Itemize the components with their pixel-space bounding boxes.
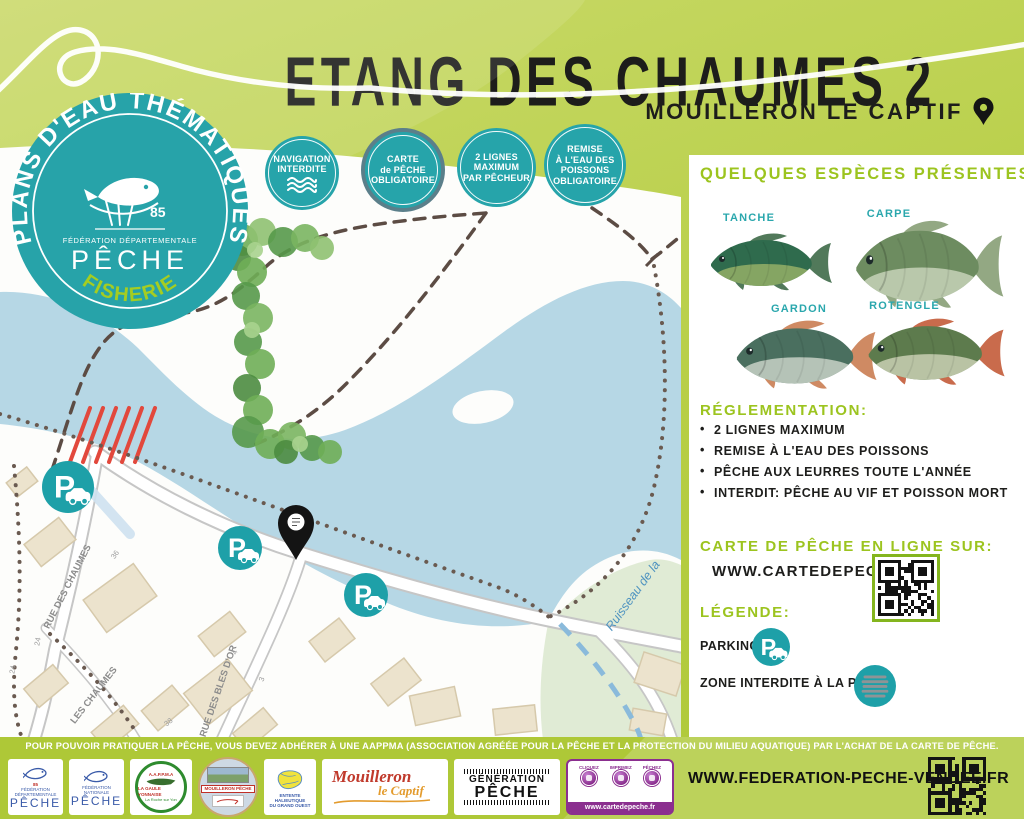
logo-federation-nationale: FÉDÉRATION NATIONALE PÊCHE — [69, 759, 124, 815]
partner-logos: 85 FÉDÉRATION DÉPARTEMENTALE PÊCHE FÉDÉR… — [8, 757, 674, 817]
legend-heading: LÉGENDE: — [700, 604, 790, 621]
badge-remise-a-leau: REMISE À L'EAU DES POISSONS OBLIGATOIRE — [544, 124, 626, 206]
legend-parking-icon — [752, 628, 790, 666]
logo-mouilleron-peche: MOUILLERON PÊCHE — [198, 757, 258, 817]
logo-entente-halieutique: ENTENTE HALIEUTIQUE DU GRAND OUEST — [264, 759, 316, 815]
parking-marker — [218, 526, 262, 570]
species-heading: QUELQUES ESPÈCES PRÉSENTES: — [700, 165, 1024, 184]
fish-image-gardon — [730, 320, 880, 392]
badge-navigation-interdite: NAVIGATION INTERDITE — [265, 136, 339, 210]
fish-logo-icon — [23, 765, 49, 782]
card-online-heading: CARTE DE PÊCHE EN LIGNE SUR: — [700, 538, 993, 555]
info-panel: QUELQUES ESPÈCES PRÉSENTES: TANCHE CARPE… — [689, 155, 1024, 737]
species-label-carpe: CARPE — [854, 208, 924, 220]
footer-bar: POUR POUVOIR PRATIQUER LA PÊCHE, VOUS DE… — [0, 737, 1024, 819]
badge-2-lignes-maximum: 2 LIGNES MAXIMUM PAR PÊCHEUR — [457, 128, 536, 207]
logo-aappma-la-gaule: A.A.P.P.M.A LA GAULE YONNAISE La Roche s… — [130, 759, 192, 815]
regulation-rule: INTERDIT: PÊCHE AU VIF ET POISSON MORT — [700, 486, 1008, 500]
legend-parking-label: PARKING — [700, 639, 760, 653]
waves-icon — [286, 177, 318, 193]
federation-qr-code — [928, 757, 986, 815]
badge-carte-de-peche-obligatoire: CARTE de PÊCHE OBLIGATOIRE — [361, 128, 445, 212]
fish-image-tanche — [705, 232, 835, 294]
poster-etang-des-chaumes: ETANG DES CHAUMES 2 MOUILLERON LE CAPTIF — [0, 0, 1024, 819]
species-label-gardon: GARDON — [764, 303, 834, 315]
regulation-rule: PÊCHE AUX LEURRES TOUTE L'ANNÉE — [700, 465, 1008, 479]
region-map-icon — [275, 767, 305, 793]
print-icon — [613, 770, 629, 786]
logo-mouilleron-le-captif: Mouilleron le Captif — [322, 759, 448, 815]
aappma-circle: A.A.P.P.M.A LA GAULE YONNAISE La Roche s… — [135, 761, 187, 813]
fish-image-carpe — [849, 220, 1007, 312]
regulation-rule: 2 LIGNES MAXIMUM — [700, 423, 1008, 437]
svg-text:24: 24 — [32, 637, 42, 647]
parking-marker — [42, 461, 94, 513]
red-fish-sketch — [212, 795, 244, 807]
federation-badge: PLANS D'EAU THÉMATIQUES 85 FÉDÉRATION DÉ… — [12, 93, 248, 329]
svg-text:85: 85 — [150, 204, 166, 220]
logo-cartedepeche-fr: CLIQUEZ IMPRIMEZ PÊCHEZ www.cartedepeche… — [566, 759, 674, 815]
parking-marker — [344, 573, 388, 617]
species-label-rotengle: ROTENGLE — [867, 300, 942, 312]
regulation-rule: REMISE À L'EAU DES POISSONS — [700, 444, 1008, 458]
regulation-list: 2 LIGNES MAXIMUM REMISE À L'EAU DES POIS… — [700, 423, 1008, 507]
swash-underline — [332, 797, 432, 805]
legend-no-fishing-zone-icon — [854, 665, 896, 707]
fish-image-rotengle — [862, 318, 1008, 388]
fish-icon — [644, 770, 660, 786]
pike-icon — [145, 777, 177, 786]
cartedepeche-qr-code — [872, 554, 940, 622]
logo-federation-departementale-85: 85 FÉDÉRATION DÉPARTEMENTALE PÊCHE — [8, 759, 63, 815]
badge-org-line: FÉDÉRATION DÉPARTEMENTALE — [63, 236, 197, 245]
logo-generation-peche: GÉNÉRATION PÊCHE — [454, 759, 560, 815]
regulation-heading: RÉGLEMENTATION: — [700, 402, 868, 419]
aappma-notice: POUR POUVOIR PRATIQUER LA PÊCHE, VOUS DE… — [0, 741, 1024, 751]
fish-logo-icon — [84, 768, 110, 785]
species-label-tanche: TANCHE — [714, 212, 784, 224]
click-icon — [581, 770, 597, 786]
svg-text:24: 24 — [7, 665, 17, 675]
photo-thumbnail — [207, 767, 249, 783]
badge-org: PÊCHE — [71, 244, 189, 275]
barcode-stripes — [464, 800, 550, 805]
